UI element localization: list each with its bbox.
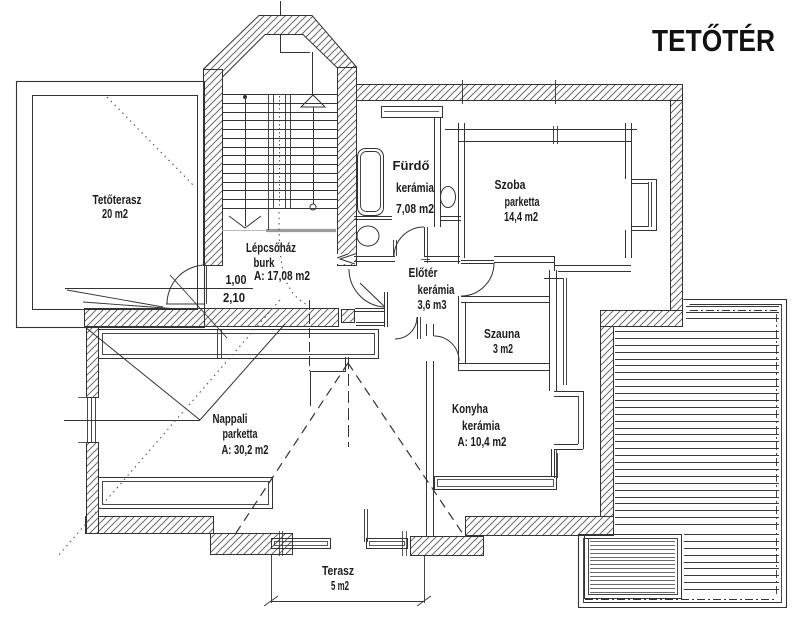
svg-text:A: 10,4 m2: A: 10,4 m2 [458,434,507,449]
svg-text:parketta: parketta [223,426,259,441]
svg-text:kerámia: kerámia [396,180,435,195]
svg-text:3,6 m3: 3,6 m3 [418,297,447,312]
svg-text:Konyha: Konyha [452,401,489,416]
svg-text:A: 30,2 m2: A: 30,2 m2 [222,442,269,457]
svg-text:20 m2: 20 m2 [102,206,128,221]
svg-text:Szoba: Szoba [495,177,527,192]
svg-text:Előtér: Előtér [409,265,438,280]
svg-text:7,08 m2: 7,08 m2 [396,201,434,216]
svg-text:parketta: parketta [505,194,541,209]
svg-text:3 m2: 3 m2 [493,341,513,356]
svg-text:Tetőterasz: Tetőterasz [93,192,142,207]
svg-text:2,10: 2,10 [223,291,245,305]
svg-text:kerámia: kerámia [418,282,456,297]
svg-text:Lépcsőház: Lépcsőház [246,240,296,255]
svg-text:Szauna: Szauna [484,326,521,341]
svg-text:Fürdő: Fürdő [393,158,430,173]
svg-text:1,00: 1,00 [226,273,247,287]
svg-text:kerámia: kerámia [462,418,501,433]
svg-text:A: 17,08 m2: A: 17,08 m2 [254,268,310,283]
svg-text:Terasz: Terasz [322,563,354,578]
svg-text:TETŐTÉR: TETŐTÉR [652,22,775,58]
svg-text:5 m2: 5 m2 [331,578,349,593]
svg-text:Nappali: Nappali [213,411,248,426]
svg-text:14,4 m2: 14,4 m2 [504,209,538,224]
